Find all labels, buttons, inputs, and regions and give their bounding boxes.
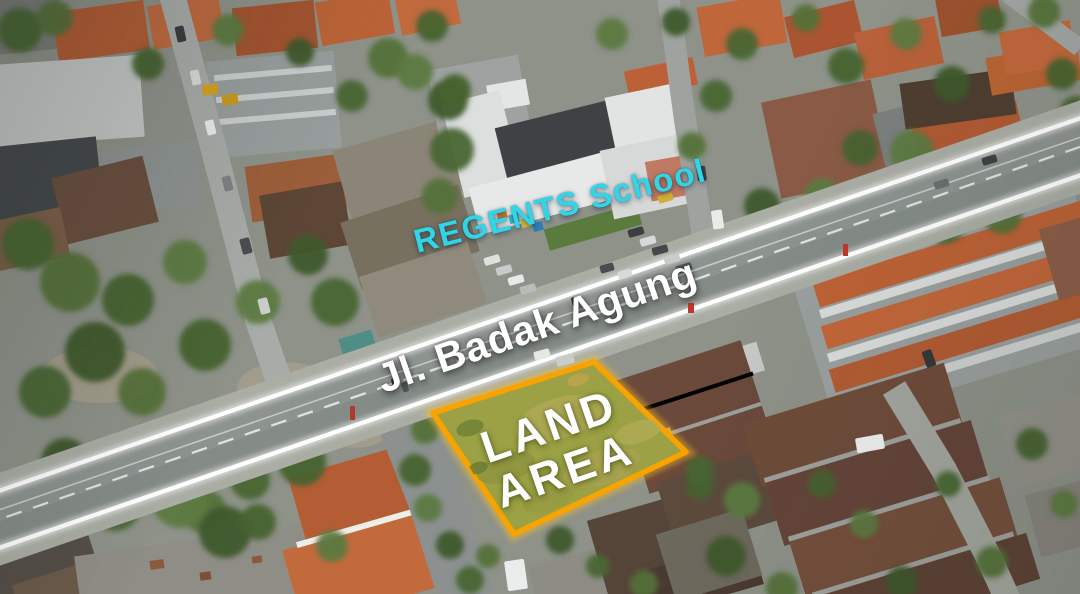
roadside-flag	[688, 303, 694, 313]
building-roof	[0, 55, 145, 147]
tree	[37, 0, 73, 36]
tree	[336, 80, 368, 112]
tree	[686, 456, 714, 484]
tree	[850, 510, 878, 538]
vehicle	[221, 93, 238, 106]
tree	[212, 14, 244, 46]
tree	[828, 48, 864, 84]
tree	[586, 554, 610, 578]
tree	[399, 454, 431, 486]
tree	[430, 128, 474, 172]
tree	[934, 66, 970, 102]
tree	[2, 218, 54, 270]
tree	[792, 4, 820, 32]
roadside-flag	[843, 244, 848, 256]
tree	[726, 28, 758, 60]
tree	[700, 80, 732, 112]
tree	[808, 470, 836, 498]
tree	[842, 130, 878, 166]
tree	[596, 18, 628, 50]
tree	[662, 8, 690, 36]
tree	[422, 178, 458, 214]
tree	[935, 471, 961, 497]
tree	[179, 319, 231, 371]
tree	[1016, 428, 1048, 460]
tree	[456, 566, 484, 594]
tree	[546, 526, 574, 554]
tree	[416, 10, 448, 42]
tree	[288, 235, 328, 275]
tree	[706, 536, 746, 576]
tree	[724, 482, 760, 518]
tree	[397, 54, 433, 90]
tree	[65, 322, 125, 382]
tree	[1046, 58, 1078, 90]
tree	[40, 252, 100, 312]
tree	[978, 6, 1006, 34]
tree	[311, 278, 359, 326]
tree	[118, 368, 166, 416]
tree	[476, 544, 500, 568]
tree	[163, 240, 207, 284]
tree	[19, 366, 71, 418]
tree	[436, 531, 464, 559]
vehicle	[202, 83, 219, 95]
building-roof	[252, 555, 263, 563]
tree	[414, 494, 442, 522]
tree	[976, 546, 1008, 578]
tree	[316, 530, 348, 562]
tree	[439, 74, 471, 106]
aerial-photo: REGENTS School Jl. Badak Agung LAND AREA	[0, 0, 1080, 594]
roadside-flag	[350, 406, 355, 420]
building-roof	[199, 571, 211, 580]
tree	[890, 18, 922, 50]
tree	[286, 38, 314, 66]
tree	[102, 274, 154, 326]
tree	[1050, 490, 1078, 518]
vehicle	[504, 559, 528, 591]
tree	[0, 8, 42, 52]
tree	[240, 504, 276, 540]
tree	[132, 48, 164, 80]
